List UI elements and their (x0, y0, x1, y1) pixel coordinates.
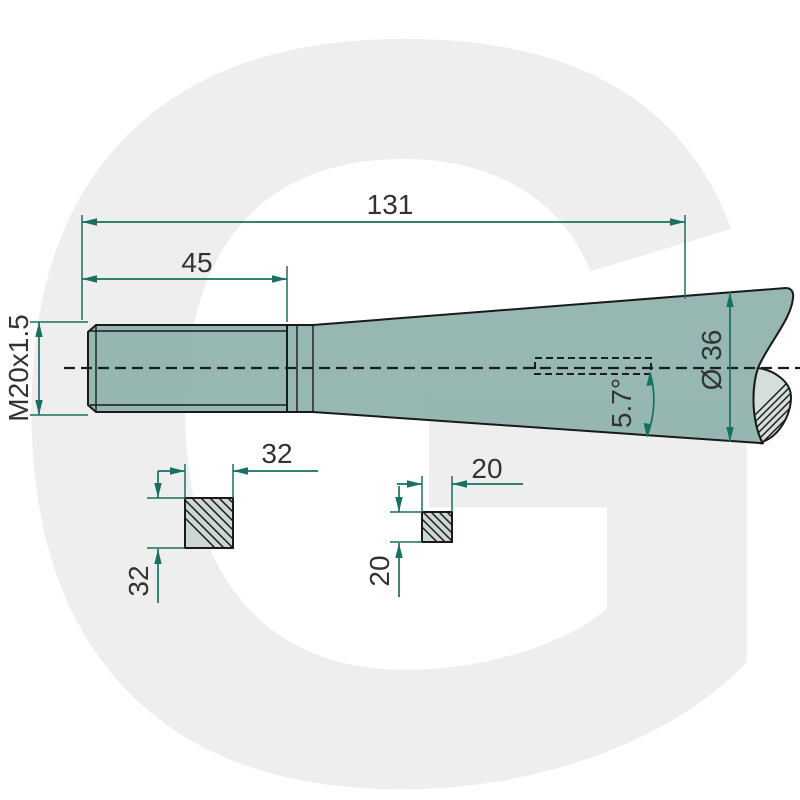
tine-body (64, 288, 800, 455)
label-131: 131 (367, 189, 414, 220)
label-45: 45 (181, 247, 212, 278)
dimension-overall-length: 131 (82, 189, 685, 320)
label-20-width: 20 (471, 453, 502, 484)
label-32-width: 32 (261, 438, 292, 469)
section-square-20: 20 20 (364, 453, 523, 597)
section-square-32: 32 32 (123, 438, 318, 603)
label-m20x15: M20x1.5 (3, 314, 34, 421)
dimension-thread-length: 45 (82, 247, 287, 322)
label-32-height: 32 (123, 565, 154, 596)
drawing-canvas: G (0, 0, 800, 800)
label-angle: 5.7° (606, 378, 637, 428)
dimension-thread-spec: M20x1.5 (3, 314, 88, 421)
label-dia36: Ø 36 (696, 330, 727, 391)
label-20-height: 20 (364, 555, 395, 586)
technical-drawing-svg: 131 45 M20x1.5 Ø 36 (0, 0, 800, 800)
